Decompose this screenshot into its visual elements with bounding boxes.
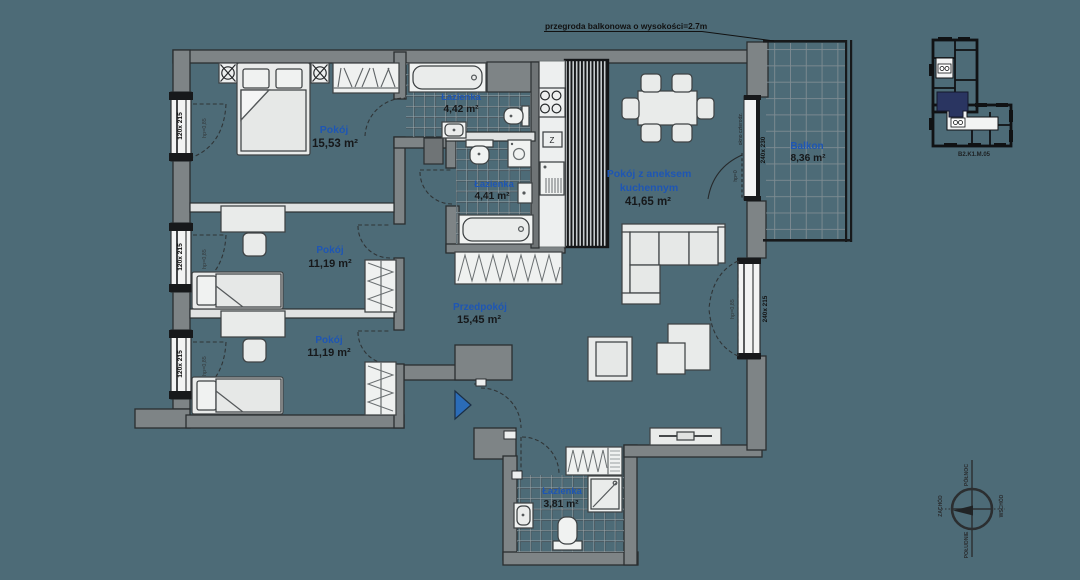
svg-text:hp=0,85: hp=0,85	[202, 249, 208, 269]
svg-text:przegroda balkonowa o wysokośc: przegroda balkonowa o wysokości=2.7m	[545, 21, 707, 31]
svg-text:okno czterodz.: okno czterodz.	[738, 113, 744, 146]
svg-text:3,81 m²: 3,81 m²	[543, 499, 579, 510]
svg-text:Pokój: Pokój	[316, 245, 343, 256]
svg-text:4,41 m²: 4,41 m²	[474, 191, 510, 202]
svg-text:4,42 m²: 4,42 m²	[443, 104, 479, 115]
svg-text:Pokój z aneksem: Pokój z aneksem	[607, 168, 692, 180]
svg-text:B2.K1.M.05: B2.K1.M.05	[958, 152, 991, 158]
svg-text:15,53 m²: 15,53 m²	[312, 138, 358, 150]
svg-text:Łazienka: Łazienka	[474, 178, 514, 189]
svg-text:120x 215: 120x 215	[177, 350, 184, 378]
svg-text:hp=0,85: hp=0,85	[730, 299, 736, 319]
svg-text:41,65 m²: 41,65 m²	[625, 196, 671, 208]
svg-text:240x 230: 240x 230	[760, 136, 767, 163]
svg-text:hp=0: hp=0	[733, 170, 739, 181]
svg-text:11,19 m²: 11,19 m²	[308, 258, 352, 270]
svg-text:240x 215: 240x 215	[762, 295, 769, 322]
svg-text:Balkon: Balkon	[790, 141, 823, 152]
svg-text:Z: Z	[550, 136, 555, 145]
svg-text:ZACHÓD: ZACHÓD	[936, 495, 944, 517]
svg-text:kuchennym: kuchennym	[620, 182, 678, 194]
svg-text:Przedpokój: Przedpokój	[453, 302, 507, 313]
svg-text:Pokój: Pokój	[320, 124, 349, 136]
svg-text:WSCHÓD: WSCHÓD	[997, 494, 1005, 517]
svg-text:11,19 m²: 11,19 m²	[307, 347, 351, 359]
svg-text:hp=0,85: hp=0,85	[202, 118, 208, 138]
svg-text:120x 215: 120x 215	[177, 243, 184, 271]
svg-text:15,45 m²: 15,45 m²	[457, 314, 501, 326]
svg-text:8,36 m²: 8,36 m²	[790, 153, 826, 164]
svg-text:hp=0,85: hp=0,85	[202, 356, 208, 376]
svg-text:POŁUDNIE: POŁUDNIE	[964, 531, 970, 558]
svg-text:120x 215: 120x 215	[177, 112, 184, 140]
svg-text:Łazienka: Łazienka	[542, 485, 582, 496]
svg-text:Łazienka: Łazienka	[441, 91, 481, 102]
svg-text:Pokój: Pokój	[315, 335, 342, 346]
svg-text:PÓŁNOC: PÓŁNOC	[962, 464, 970, 486]
